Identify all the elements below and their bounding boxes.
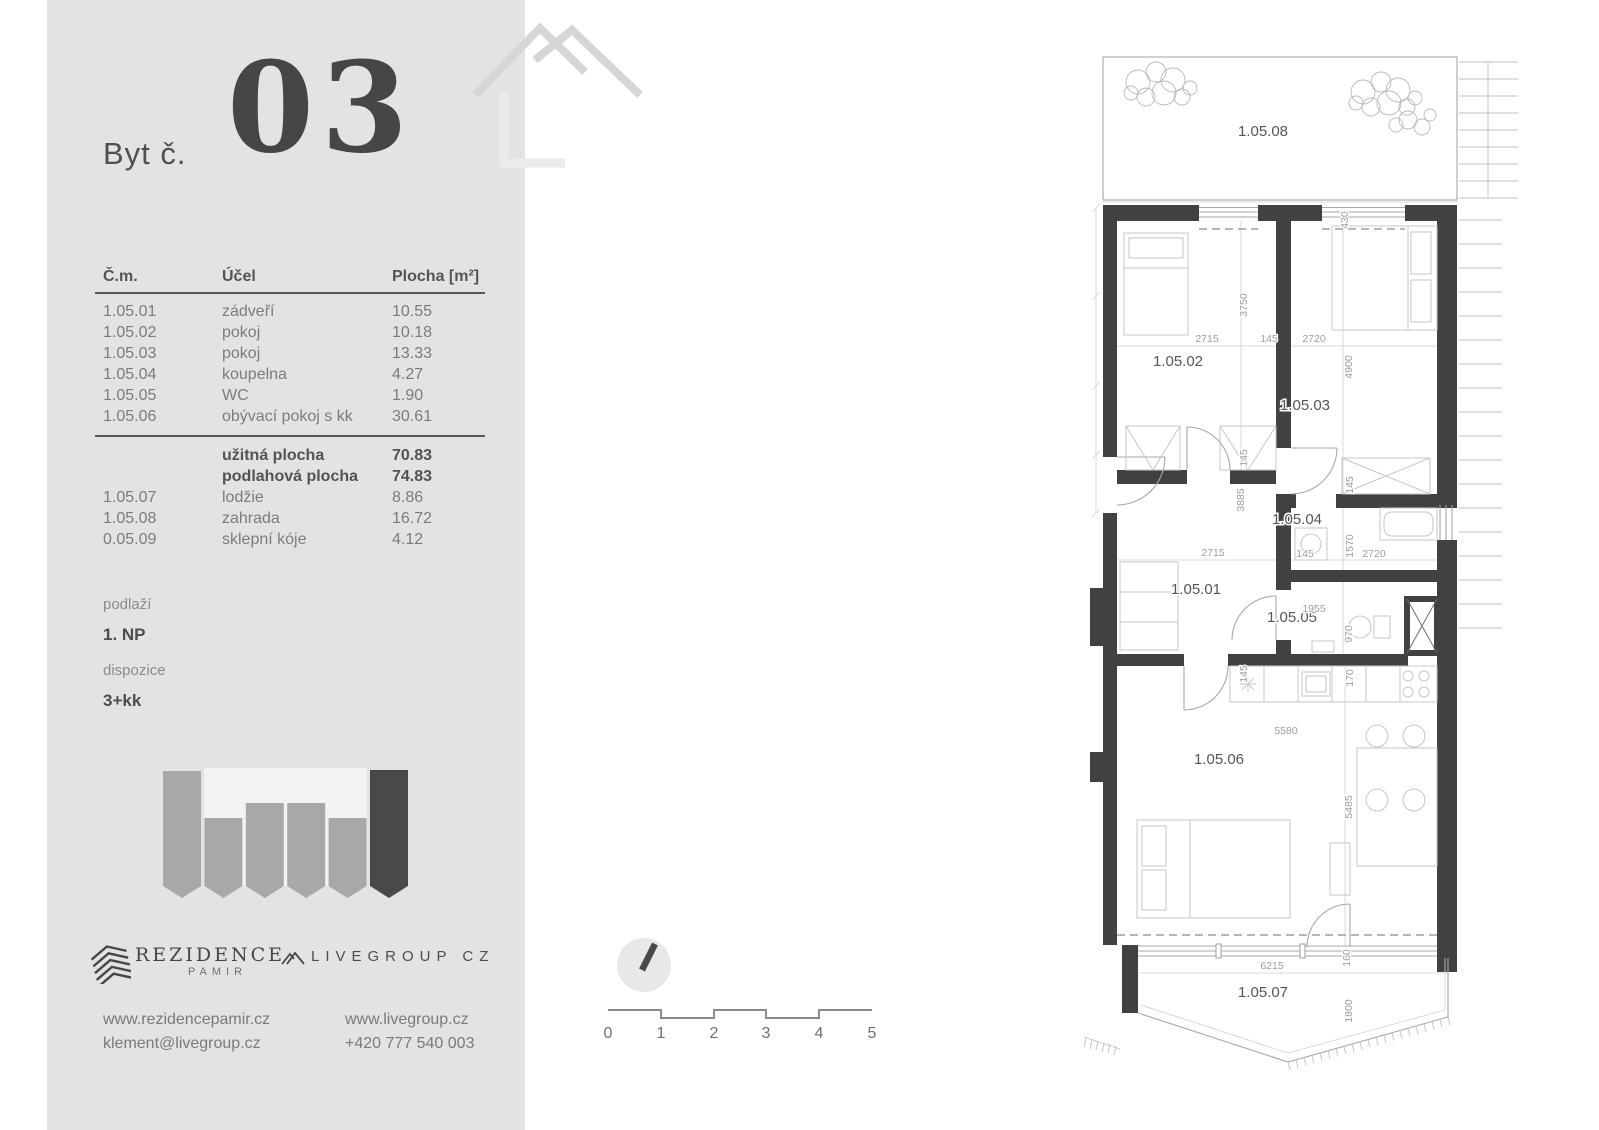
cell-area: 16.72 (392, 508, 485, 529)
cell-id: 1.05.04 (95, 364, 222, 385)
room-table-header: Č.m. Účel Plocha [m²] (95, 266, 485, 294)
livegroup-logo-text: LIVEGROUP CZ (311, 948, 494, 965)
header-area: Plocha [m²] (392, 266, 485, 292)
summary-area: 70.83 (392, 445, 485, 466)
building-bar (163, 771, 201, 898)
shaft (1407, 599, 1437, 653)
cell-id: 1.05.08 (95, 508, 222, 529)
header-purpose: Účel (222, 266, 392, 292)
cell-id: 0.05.09 (95, 529, 222, 550)
north-arrow (617, 938, 671, 992)
info-sidebar: Byt č. 03 Č.m. Účel Plocha [m²] 1.05.01 … (47, 0, 525, 1130)
door-arcs (1117, 427, 1350, 947)
cell-purpose: zádveří (222, 301, 392, 322)
layout-value: 3+kk (103, 691, 141, 711)
dim-label: 970 (1343, 625, 1355, 643)
dimension-chain-lines (1092, 204, 1457, 973)
floor-plan: 1.05.08 1.05.02 1.05.03 1.05.04 1.05.01 … (1060, 30, 1580, 1090)
phone-number: +420 777 540 003 (345, 1032, 474, 1056)
building-elevation-diagram (160, 750, 410, 900)
rezidence-logo-icon (91, 942, 131, 984)
table-row: 1.05.04 koupelna 4.27 (95, 364, 485, 385)
cell-purpose: koupelna (222, 364, 392, 385)
cell-purpose: WC (222, 385, 392, 406)
dim-label: 170 (1344, 669, 1356, 687)
cell-id: 1.05.03 (95, 343, 222, 364)
dim-label: 160 (1341, 949, 1353, 967)
scale-label: 0 (604, 1025, 613, 1042)
room-table: Č.m. Účel Plocha [m²] 1.05.01 zádveří 10… (95, 266, 485, 550)
plant-symbol (1124, 62, 1197, 106)
cell-id: 1.05.05 (95, 385, 222, 406)
building-bar (329, 818, 367, 898)
room-label: 1.05.01 (1171, 581, 1221, 598)
plant-symbol (1349, 72, 1436, 135)
room-labels: 1.05.08 1.05.02 1.05.03 1.05.04 1.05.01 … (1153, 123, 1330, 1001)
dim-label: 4900 (1343, 355, 1355, 379)
scale-label: 4 (815, 1025, 824, 1042)
floor-label: podlaží (103, 596, 151, 613)
cell-area: 30.61 (392, 406, 485, 427)
dim-label: 430 (1339, 211, 1351, 229)
layout-label: dispozice (103, 662, 166, 679)
scale-label: 3 (762, 1025, 771, 1042)
scale-label: 1 (657, 1025, 666, 1042)
scale-bar: 0 1 2 3 4 5 (600, 1000, 890, 1045)
cell-purpose: zahrada (222, 508, 392, 529)
building-bar (287, 803, 325, 898)
livegroup-logo-icon (281, 949, 307, 967)
building-bar-highlighted (370, 770, 408, 898)
summary-row: užitná plocha 70.83 (95, 445, 485, 466)
rezidence-logo-subtext: PAMIR (188, 966, 247, 978)
cell-area: 10.55 (392, 301, 485, 322)
apartment-card-page: { "page": {"sidebar_bg": "#e3e3e3", "wal… (0, 0, 1599, 1130)
dim-label: 3750 (1238, 293, 1250, 317)
dim-label: 1800 (1343, 999, 1355, 1023)
dim-label: 145 (1260, 333, 1278, 345)
table-row: 0.05.09 sklepní kóje 4.12 (95, 529, 485, 550)
livegroup-watermark-icon (455, 15, 655, 175)
cell-purpose: pokoj (222, 343, 392, 364)
loggia (1084, 958, 1450, 1070)
dim-label: 5485 (1343, 795, 1355, 819)
dim-label: 2715 (1201, 547, 1225, 559)
room-label: 1.05.06 (1194, 751, 1244, 768)
cell-area: 4.27 (392, 364, 485, 385)
table-row: 1.05.05 WC 1.90 (95, 385, 485, 406)
cell-purpose: pokoj (222, 322, 392, 343)
room-label: 1.05.07 (1238, 984, 1288, 1001)
cell-area: 10.18 (392, 322, 485, 343)
table-divider (95, 435, 485, 445)
website-livegroup-link[interactable]: www.livegroup.cz (345, 1008, 469, 1032)
cell-purpose: obývací pokoj s kk (222, 406, 392, 427)
dim-label: 5580 (1274, 725, 1298, 737)
dim-label: 145 (1238, 449, 1250, 467)
header-id: Č.m. (95, 266, 222, 292)
hatch-lines (1459, 62, 1518, 628)
unit-label: Byt č. (103, 136, 187, 172)
scale-label: 2 (710, 1025, 719, 1042)
email-link[interactable]: klement@livegroup.cz (103, 1032, 261, 1056)
cell-id: 1.05.02 (95, 322, 222, 343)
dim-label: 6215 (1260, 960, 1284, 972)
dim-label: 3885 (1235, 488, 1247, 512)
dim-label: 2720 (1302, 333, 1326, 345)
table-row: 1.05.03 pokoj 13.33 (95, 343, 485, 364)
cell-id: 1.05.07 (95, 487, 222, 508)
dim-label: 2720 (1362, 548, 1386, 560)
summary-row: podlahová plocha 74.83 (95, 466, 485, 487)
table-row: 1.05.06 obývací pokoj s kk 30.61 (95, 406, 485, 427)
summary-purpose: užitná plocha (222, 445, 392, 466)
rezidence-logo-text: REZIDENCE (135, 944, 285, 966)
table-row: 1.05.08 zahrada 16.72 (95, 508, 485, 529)
cell-purpose: sklepní kóje (222, 529, 392, 550)
dim-label: 145 (1296, 548, 1314, 560)
cell-area: 8.86 (392, 487, 485, 508)
dim-label: 145 (1344, 476, 1356, 494)
cell-area: 13.33 (392, 343, 485, 364)
room-label: 1.05.03 (1280, 397, 1330, 414)
cell-id: 1.05.01 (95, 301, 222, 322)
north-needle-icon (617, 938, 671, 992)
table-row: 1.05.02 pokoj 10.18 (95, 322, 485, 343)
summary-purpose: podlahová plocha (222, 466, 392, 487)
room-label: 1.05.08 (1238, 123, 1288, 140)
cell-purpose: lodžie (222, 487, 392, 508)
cell-id: 1.05.06 (95, 406, 222, 427)
dim-label: 1955 (1302, 603, 1326, 615)
table-row: 1.05.01 zádveří 10.55 (95, 301, 485, 322)
unit-number: 03 (227, 46, 415, 171)
room-label: 1.05.04 (1272, 511, 1322, 528)
dim-label: 2715 (1195, 333, 1219, 345)
scale-label: 5 (868, 1025, 877, 1042)
room-label: 1.05.02 (1153, 353, 1203, 370)
website-pamir-link[interactable]: www.rezidencepamir.cz (103, 1008, 270, 1032)
building-bar (204, 818, 242, 898)
table-row: 1.05.07 lodžie 8.86 (95, 487, 485, 508)
cell-area: 1.90 (392, 385, 485, 406)
cell-area: 4.12 (392, 529, 485, 550)
building-bar (246, 803, 284, 898)
floor-value: 1. NP (103, 625, 146, 645)
dim-label: 1570 (1344, 534, 1356, 558)
dim-label: 145 (1238, 665, 1250, 683)
summary-area: 74.83 (392, 466, 485, 487)
